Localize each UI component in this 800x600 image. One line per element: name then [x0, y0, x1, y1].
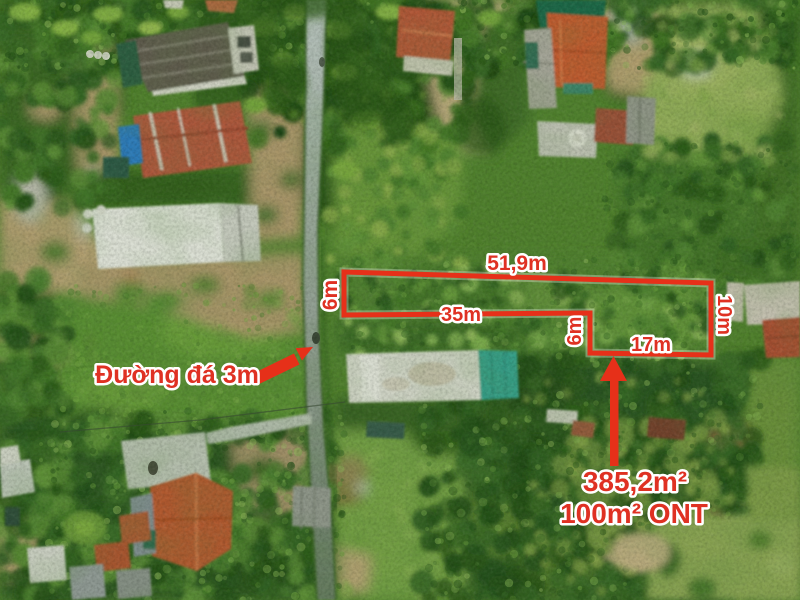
svg-text:Đường đá 3m: Đường đá 3m: [95, 361, 259, 389]
svg-text:385,2m²: 385,2m²: [583, 466, 687, 497]
svg-text:51,9m: 51,9m: [487, 252, 547, 275]
svg-text:100m² ONT: 100m² ONT: [560, 498, 708, 529]
svg-text:35m: 35m: [441, 304, 481, 326]
svg-text:6m: 6m: [319, 280, 342, 310]
svg-text:10m: 10m: [713, 295, 735, 335]
svg-text:6m: 6m: [564, 317, 586, 346]
svg-text:17m: 17m: [631, 334, 671, 356]
